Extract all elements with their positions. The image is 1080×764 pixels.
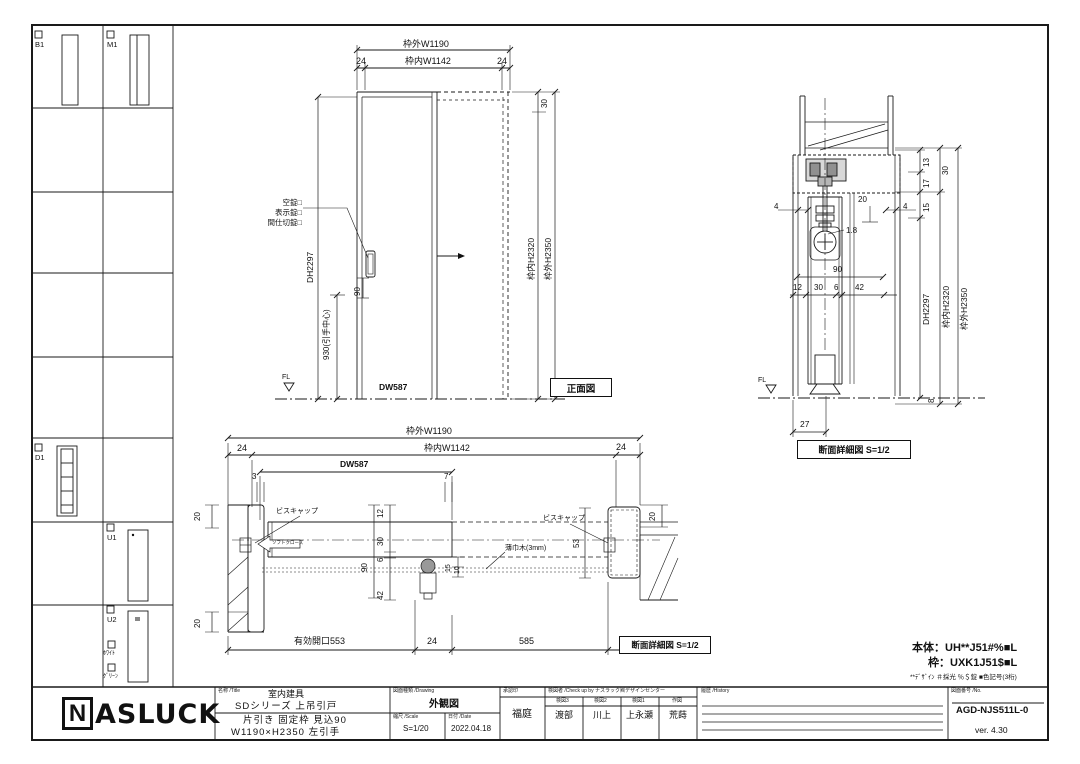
sidebar-item-m1: M1 xyxy=(107,41,117,49)
fl-marker-section xyxy=(766,385,776,393)
sec-dim-12: 12 xyxy=(793,284,802,292)
front-label-lock1: 空錠□ xyxy=(282,199,302,207)
titleblock-name2: SDシリーズ 上吊引戸 xyxy=(235,702,337,712)
plan-label-softclose: ソフトクローズ xyxy=(272,541,303,546)
sec-dim-right4: 4 xyxy=(903,203,907,211)
plan-dim-20-bottomleft: 20 xyxy=(194,619,202,628)
titleblock-spec1: 片引き 固定枠 見込90 xyxy=(243,716,347,726)
front-dim-right-24: 24 xyxy=(497,57,507,66)
left-wall-jamb xyxy=(228,505,264,632)
front-dim-dh2297: DH2297 xyxy=(306,252,315,283)
sec-dim-6: 6 xyxy=(834,284,838,292)
right-wall xyxy=(640,522,678,600)
titleblock-date-label: 日付 /Date xyxy=(448,715,471,720)
plan-dim-585: 585 xyxy=(519,637,534,646)
plan-dim-15: 15 xyxy=(445,564,452,572)
front-dim-90: 90 xyxy=(354,287,362,296)
plan-dim-right-24: 24 xyxy=(616,443,626,452)
sec-dim-8: 8 xyxy=(928,399,936,403)
front-dim-inner-height: 枠内H2320 xyxy=(527,238,536,280)
plan-dim-20-topleft: 20 xyxy=(194,512,202,521)
section-view-title: 断面詳細図 S=1/2 xyxy=(818,443,889,456)
logo-n-letter: N xyxy=(69,700,86,728)
sec-dim-left4: 4 xyxy=(774,203,778,211)
product-code-frame: 枠：UXK1J51$■L xyxy=(928,658,1017,669)
plan-dim-outer-width: 枠外W1190 xyxy=(406,427,452,436)
plan-dim-53: 53 xyxy=(573,539,581,548)
titleblock-approval-name: 福庭 xyxy=(512,710,532,720)
front-fl-label: FL xyxy=(282,374,290,381)
sec-dim-dh2297: DH2297 xyxy=(922,294,931,325)
sec-fl-label: FL xyxy=(758,377,766,384)
titleblock-check-label: 検図者 /Check up by ナスラック㈱デザインセンター xyxy=(548,689,665,694)
front-dim-30: 30 xyxy=(541,99,549,108)
sec-dim-17: 17 xyxy=(923,179,931,188)
plan-label-screwcap-right: ビスキャップ xyxy=(543,515,585,522)
product-code-note: **ﾃﾞｻﾞｲﾝ ＃採光 ％＄錠 ■色記号(3桁) xyxy=(910,675,1017,682)
titleblock-drawing-number: AGD-NJS511L-0 xyxy=(956,706,1028,716)
front-view-title-box: 正面図 xyxy=(550,378,612,397)
plan-dim-7: 7 xyxy=(444,473,448,481)
titleblock-drawing-label: 図面種類 /Drawing xyxy=(393,689,434,694)
plan-dim-42: 42 xyxy=(377,591,385,600)
titleblock-drawing-type: 外観図 xyxy=(429,700,459,710)
plan-dim-10: 10 xyxy=(454,566,461,574)
titleblock-name1: 室内建具 xyxy=(268,690,304,699)
fl-marker-front xyxy=(284,383,294,391)
sec-dim-30b: 30 xyxy=(814,284,823,292)
front-dim-outer-height: 枠外H2350 xyxy=(544,238,553,280)
sidebar-item-u1: U1 xyxy=(107,534,117,542)
check-role-2: 検図2 xyxy=(594,699,607,704)
plan-view-title-box: 断面詳細図 S=1/2 xyxy=(619,636,711,654)
plan-dim-inner-width: 枠内W1142 xyxy=(424,444,470,453)
plan-label-baseboard: 薄巾木(3mm) xyxy=(505,545,546,552)
product-code-body: 本体：UH**J51#%■L xyxy=(912,643,1017,654)
plan-dim-dw587: DW587 xyxy=(340,460,368,469)
sec-dim-90: 90 xyxy=(833,266,842,274)
check-name-draft: 荒蒔 xyxy=(669,711,687,720)
titleblock-scale-label: 縮尺 /Scale xyxy=(393,715,418,720)
titleblock-name-label: 名称 /Title xyxy=(218,689,240,694)
sheet-border xyxy=(32,25,1048,740)
plan-dim-6: 6 xyxy=(377,558,385,562)
plan-dim-opening: 有効開口553 xyxy=(294,637,345,646)
sec-dim-20: 20 xyxy=(858,196,867,204)
door-end-guide xyxy=(420,559,436,599)
check-role-1: 検図1 xyxy=(632,699,645,704)
drawing-sheet: B1 M1 D1 U1 U2 ﾎﾜｲﾄ ｸﾞﾘｰﾝ 枠外W1190 24 枠内W… xyxy=(0,0,1080,764)
titleblock-approval-label: 承認印 xyxy=(503,689,518,694)
front-view xyxy=(275,45,565,402)
section-view xyxy=(758,96,985,437)
plan-dim-30: 30 xyxy=(377,537,385,546)
check-name-3: 渡部 xyxy=(555,711,573,720)
sidebar-symbols xyxy=(35,31,149,682)
section-view-title-box: 断面詳細図 S=1/2 xyxy=(797,440,911,459)
color-option-white: ﾎﾜｲﾄ xyxy=(103,651,115,657)
front-dim-left-24: 24 xyxy=(356,57,366,66)
plan-dim-20-right: 20 xyxy=(649,512,657,521)
front-label-lock3: 間仕切錠□ xyxy=(267,219,302,227)
front-dim-inner-width: 枠内W1142 xyxy=(405,57,451,66)
floor-guide xyxy=(810,355,840,394)
slide-direction-arrow xyxy=(437,253,465,259)
sec-dim-outer-height: 枠外H2350 xyxy=(960,288,969,330)
titleblock-date-value: 2022.04.18 xyxy=(451,725,491,733)
sec-dim-27: 27 xyxy=(800,420,809,429)
nasluck-logo-n: N xyxy=(62,697,93,730)
check-name-2: 川上 xyxy=(593,711,611,720)
sec-dim-inner-height: 枠内H2320 xyxy=(942,286,951,328)
titleblock-scale-value: S=1/20 xyxy=(403,725,429,733)
plan-view-title: 断面詳細図 S=1/2 xyxy=(631,639,698,651)
plan-dim-3: 3 xyxy=(252,473,256,481)
front-dim-outer-width: 枠外W1190 xyxy=(403,40,449,49)
sec-dim-42: 42 xyxy=(855,284,864,292)
sec-dim-30: 30 xyxy=(942,166,950,175)
sidebar-item-d1: D1 xyxy=(35,454,45,462)
sidebar-grid xyxy=(32,25,173,687)
check-role-draft: 作図 xyxy=(672,699,682,704)
nasluck-logo: ASLUCK xyxy=(95,699,220,730)
color-option-green: ｸﾞﾘｰﾝ xyxy=(103,674,118,680)
plan-dim-12: 12 xyxy=(377,509,385,518)
titleblock-spec2: W1190×H2350 左引手 xyxy=(231,728,340,738)
titleblock-number-label: 図面番号 /No. xyxy=(951,689,982,694)
front-label-lock2: 表示錠□ xyxy=(275,209,302,217)
hanger-roller-assembly xyxy=(806,159,846,260)
front-view-title: 正面図 xyxy=(567,381,596,395)
plan-label-screwcap-left: ビスキャップ xyxy=(276,508,318,515)
check-name-1: 上永瀬 xyxy=(626,711,653,720)
sec-dim-15: 15 xyxy=(923,203,931,212)
check-role-3: 検図3 xyxy=(556,699,569,704)
plan-dim-90: 90 xyxy=(361,563,369,572)
titleblock-history-label: 履歴 /History xyxy=(701,689,729,694)
sec-dim-13: 13 xyxy=(923,158,931,167)
plan-dim-left-24: 24 xyxy=(237,444,247,453)
sidebar-item-u2: U2 xyxy=(107,616,117,624)
titleblock-version: ver. 4.30 xyxy=(975,726,1008,735)
sec-dim-1-8: 1.8 xyxy=(846,227,857,235)
door-handle xyxy=(366,251,375,277)
plan-dim-24: 24 xyxy=(427,637,437,646)
front-dim-930: 930(引手中心) xyxy=(323,309,331,360)
sidebar-item-b1: B1 xyxy=(35,41,44,49)
front-dim-dw587: DW587 xyxy=(379,383,407,392)
right-jamb xyxy=(604,507,640,578)
